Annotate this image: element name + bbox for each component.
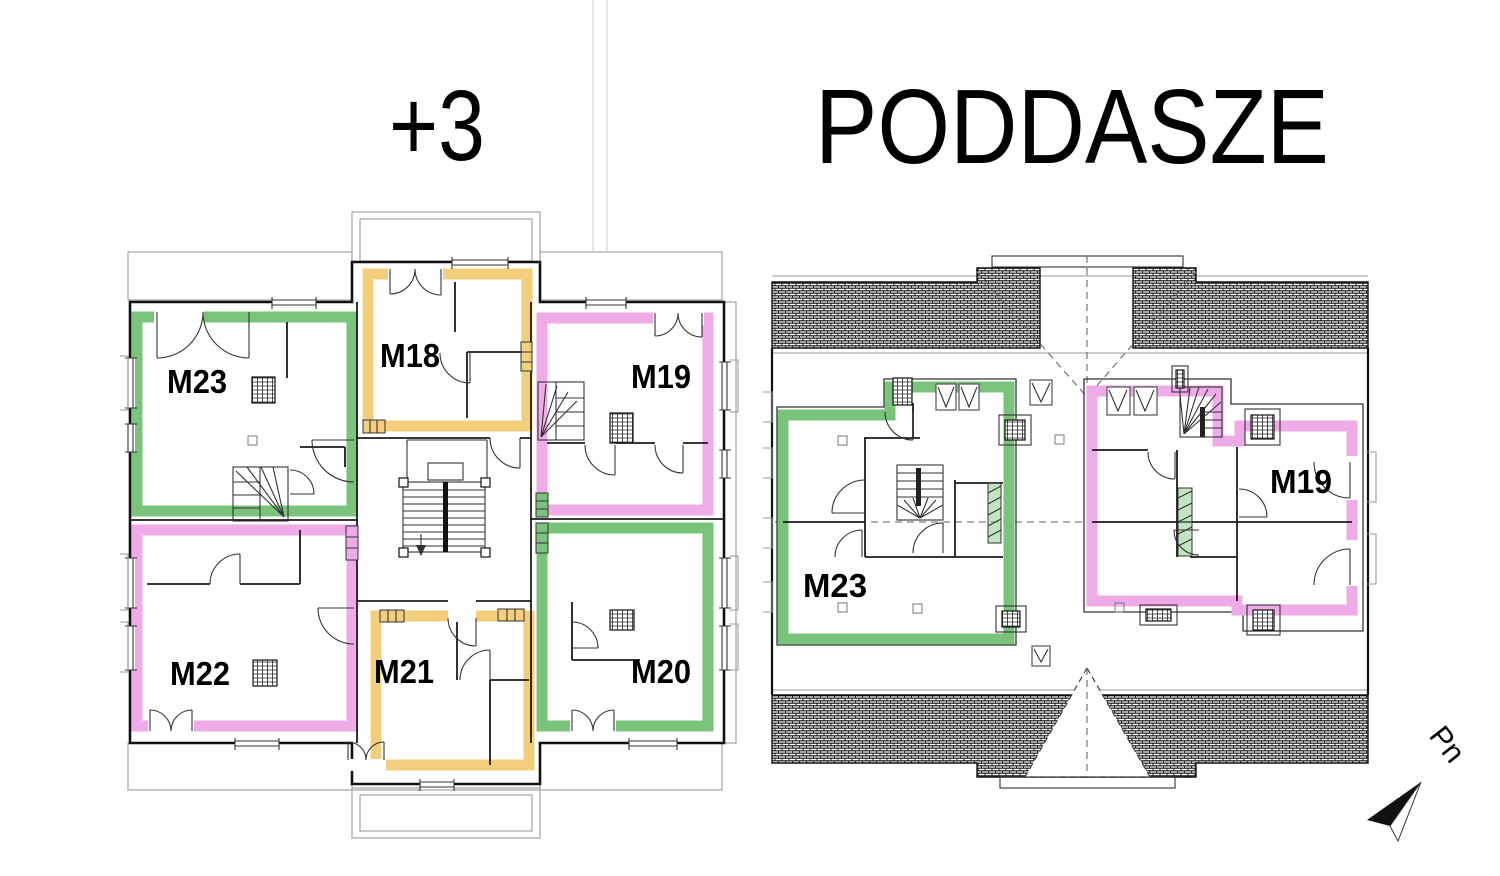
attic-stair-left <box>897 465 943 520</box>
apartment-label-m19-attic: M19 <box>1270 463 1332 500</box>
skylight-windows <box>936 380 1157 666</box>
vent-orange-4 <box>380 610 404 622</box>
tall-vent-2 <box>988 483 1001 543</box>
right-floor-plan: M23 M19 <box>763 256 1376 788</box>
floor-title-poddasze: PODDASZE <box>815 68 1329 186</box>
north-label: Pn <box>1422 720 1471 769</box>
floor-plan-sheet: +3 PODDASZE <box>0 0 1500 876</box>
apartment-label-m23-attic: M23 <box>803 567 867 604</box>
apartment-label-m22: M22 <box>170 655 230 692</box>
dormer-front-bottom <box>1000 777 1175 788</box>
site-boundary-lines <box>593 0 607 252</box>
apartment-label-m23: M23 <box>167 363 227 400</box>
vent-green-1 <box>536 493 548 517</box>
vent-orange-2 <box>363 420 385 433</box>
apartment-label-m20: M20 <box>631 653 691 690</box>
apartment-label-m19: M19 <box>631 358 691 395</box>
architectural-floor-plans: +3 PODDASZE <box>0 0 1500 876</box>
north-arrow: Pn <box>1367 720 1471 841</box>
roof-hatch-top-right <box>1133 268 1368 348</box>
apartment-label-m21: M21 <box>374 653 434 690</box>
vent-green-2 <box>536 523 548 553</box>
vent-orange-3 <box>498 609 524 621</box>
floor-title-plus3: +3 <box>389 70 485 182</box>
apartment-label-m18: M18 <box>380 337 440 374</box>
column-markers <box>838 435 1124 613</box>
roof-hatch-top <box>772 268 1040 348</box>
vent-orange-1 <box>521 342 532 371</box>
vent-pink-1 <box>346 526 358 560</box>
